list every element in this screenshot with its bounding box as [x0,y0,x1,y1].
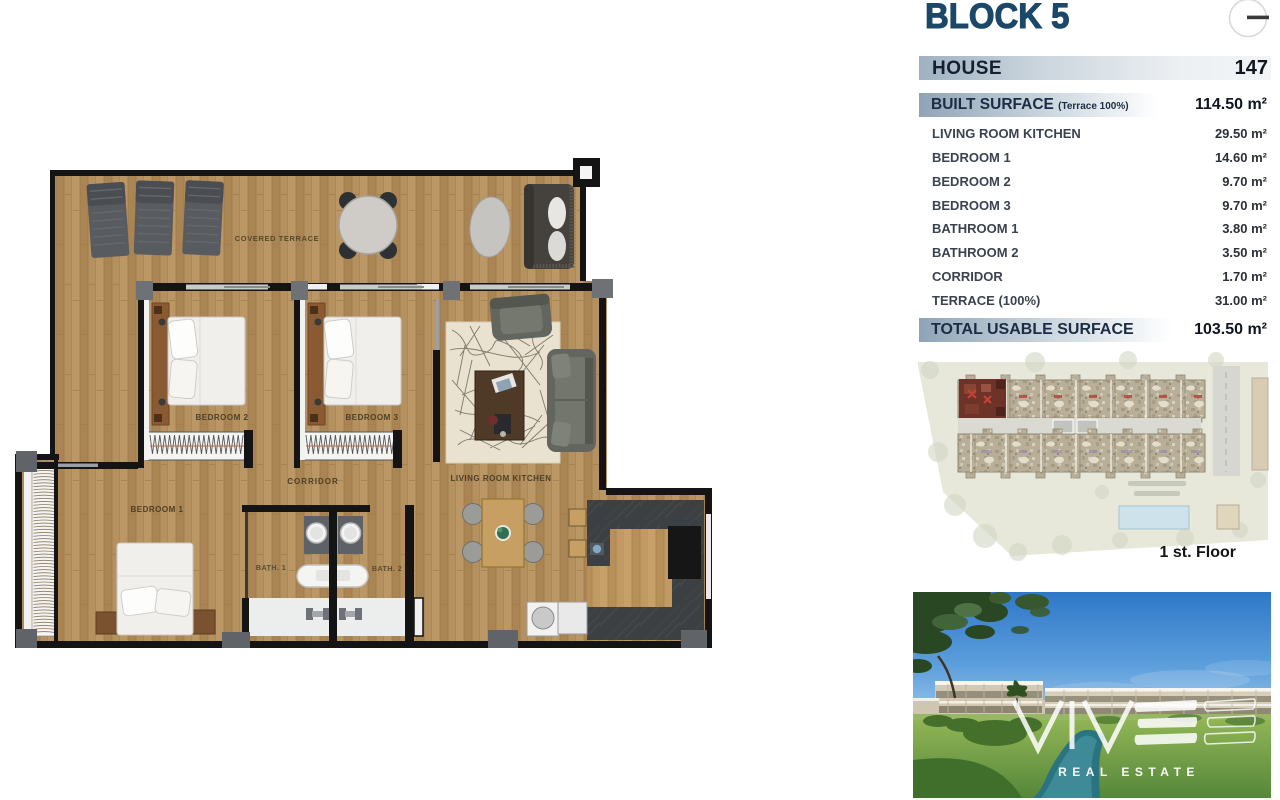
svg-text:BEDROOM 3: BEDROOM 3 [346,413,399,422]
svg-text:BEDROOM 2: BEDROOM 2 [196,413,249,422]
svg-text:CORRIDOR: CORRIDOR [287,477,339,486]
svg-text:COVERED TERRACE: COVERED TERRACE [235,234,319,243]
svg-text:LIVING ROOM KITCHEN: LIVING ROOM KITCHEN [450,474,551,483]
svg-text:BATH. 2: BATH. 2 [372,564,402,573]
svg-text:REAL ESTATE: REAL ESTATE [1058,765,1200,779]
svg-text:BEDROOM 1: BEDROOM 1 [131,505,184,514]
svg-text:BATH. 1: BATH. 1 [256,563,286,572]
